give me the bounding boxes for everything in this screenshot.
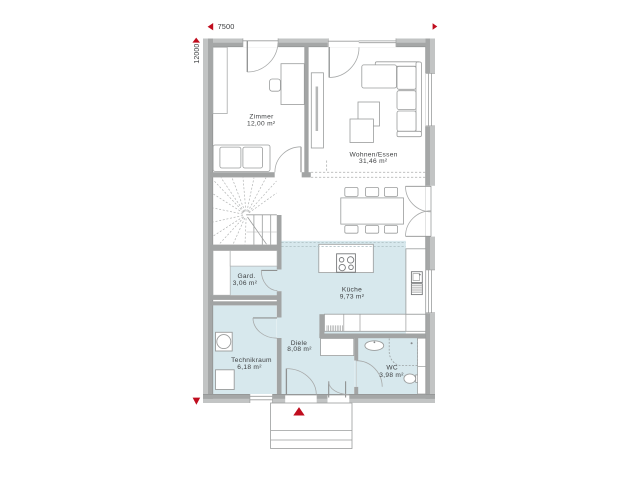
svg-text:7500: 7500 — [218, 22, 235, 31]
svg-text:12,00 m²: 12,00 m² — [247, 120, 276, 127]
svg-text:3,98 m²: 3,98 m² — [379, 372, 404, 379]
svg-text:6,18 m²: 6,18 m² — [237, 364, 262, 371]
svg-text:8,08 m²: 8,08 m² — [287, 346, 312, 353]
svg-text:Gard.: Gard. — [238, 273, 256, 280]
svg-text:3,06 m²: 3,06 m² — [233, 280, 258, 287]
svg-text:31,46 m²: 31,46 m² — [359, 158, 388, 165]
svg-text:9,73 m²: 9,73 m² — [340, 294, 365, 301]
svg-text:WC: WC — [386, 365, 398, 372]
svg-text:Technikraum: Technikraum — [231, 357, 272, 364]
svg-text:Küche: Küche — [342, 286, 362, 293]
svg-text:12000: 12000 — [194, 44, 201, 64]
